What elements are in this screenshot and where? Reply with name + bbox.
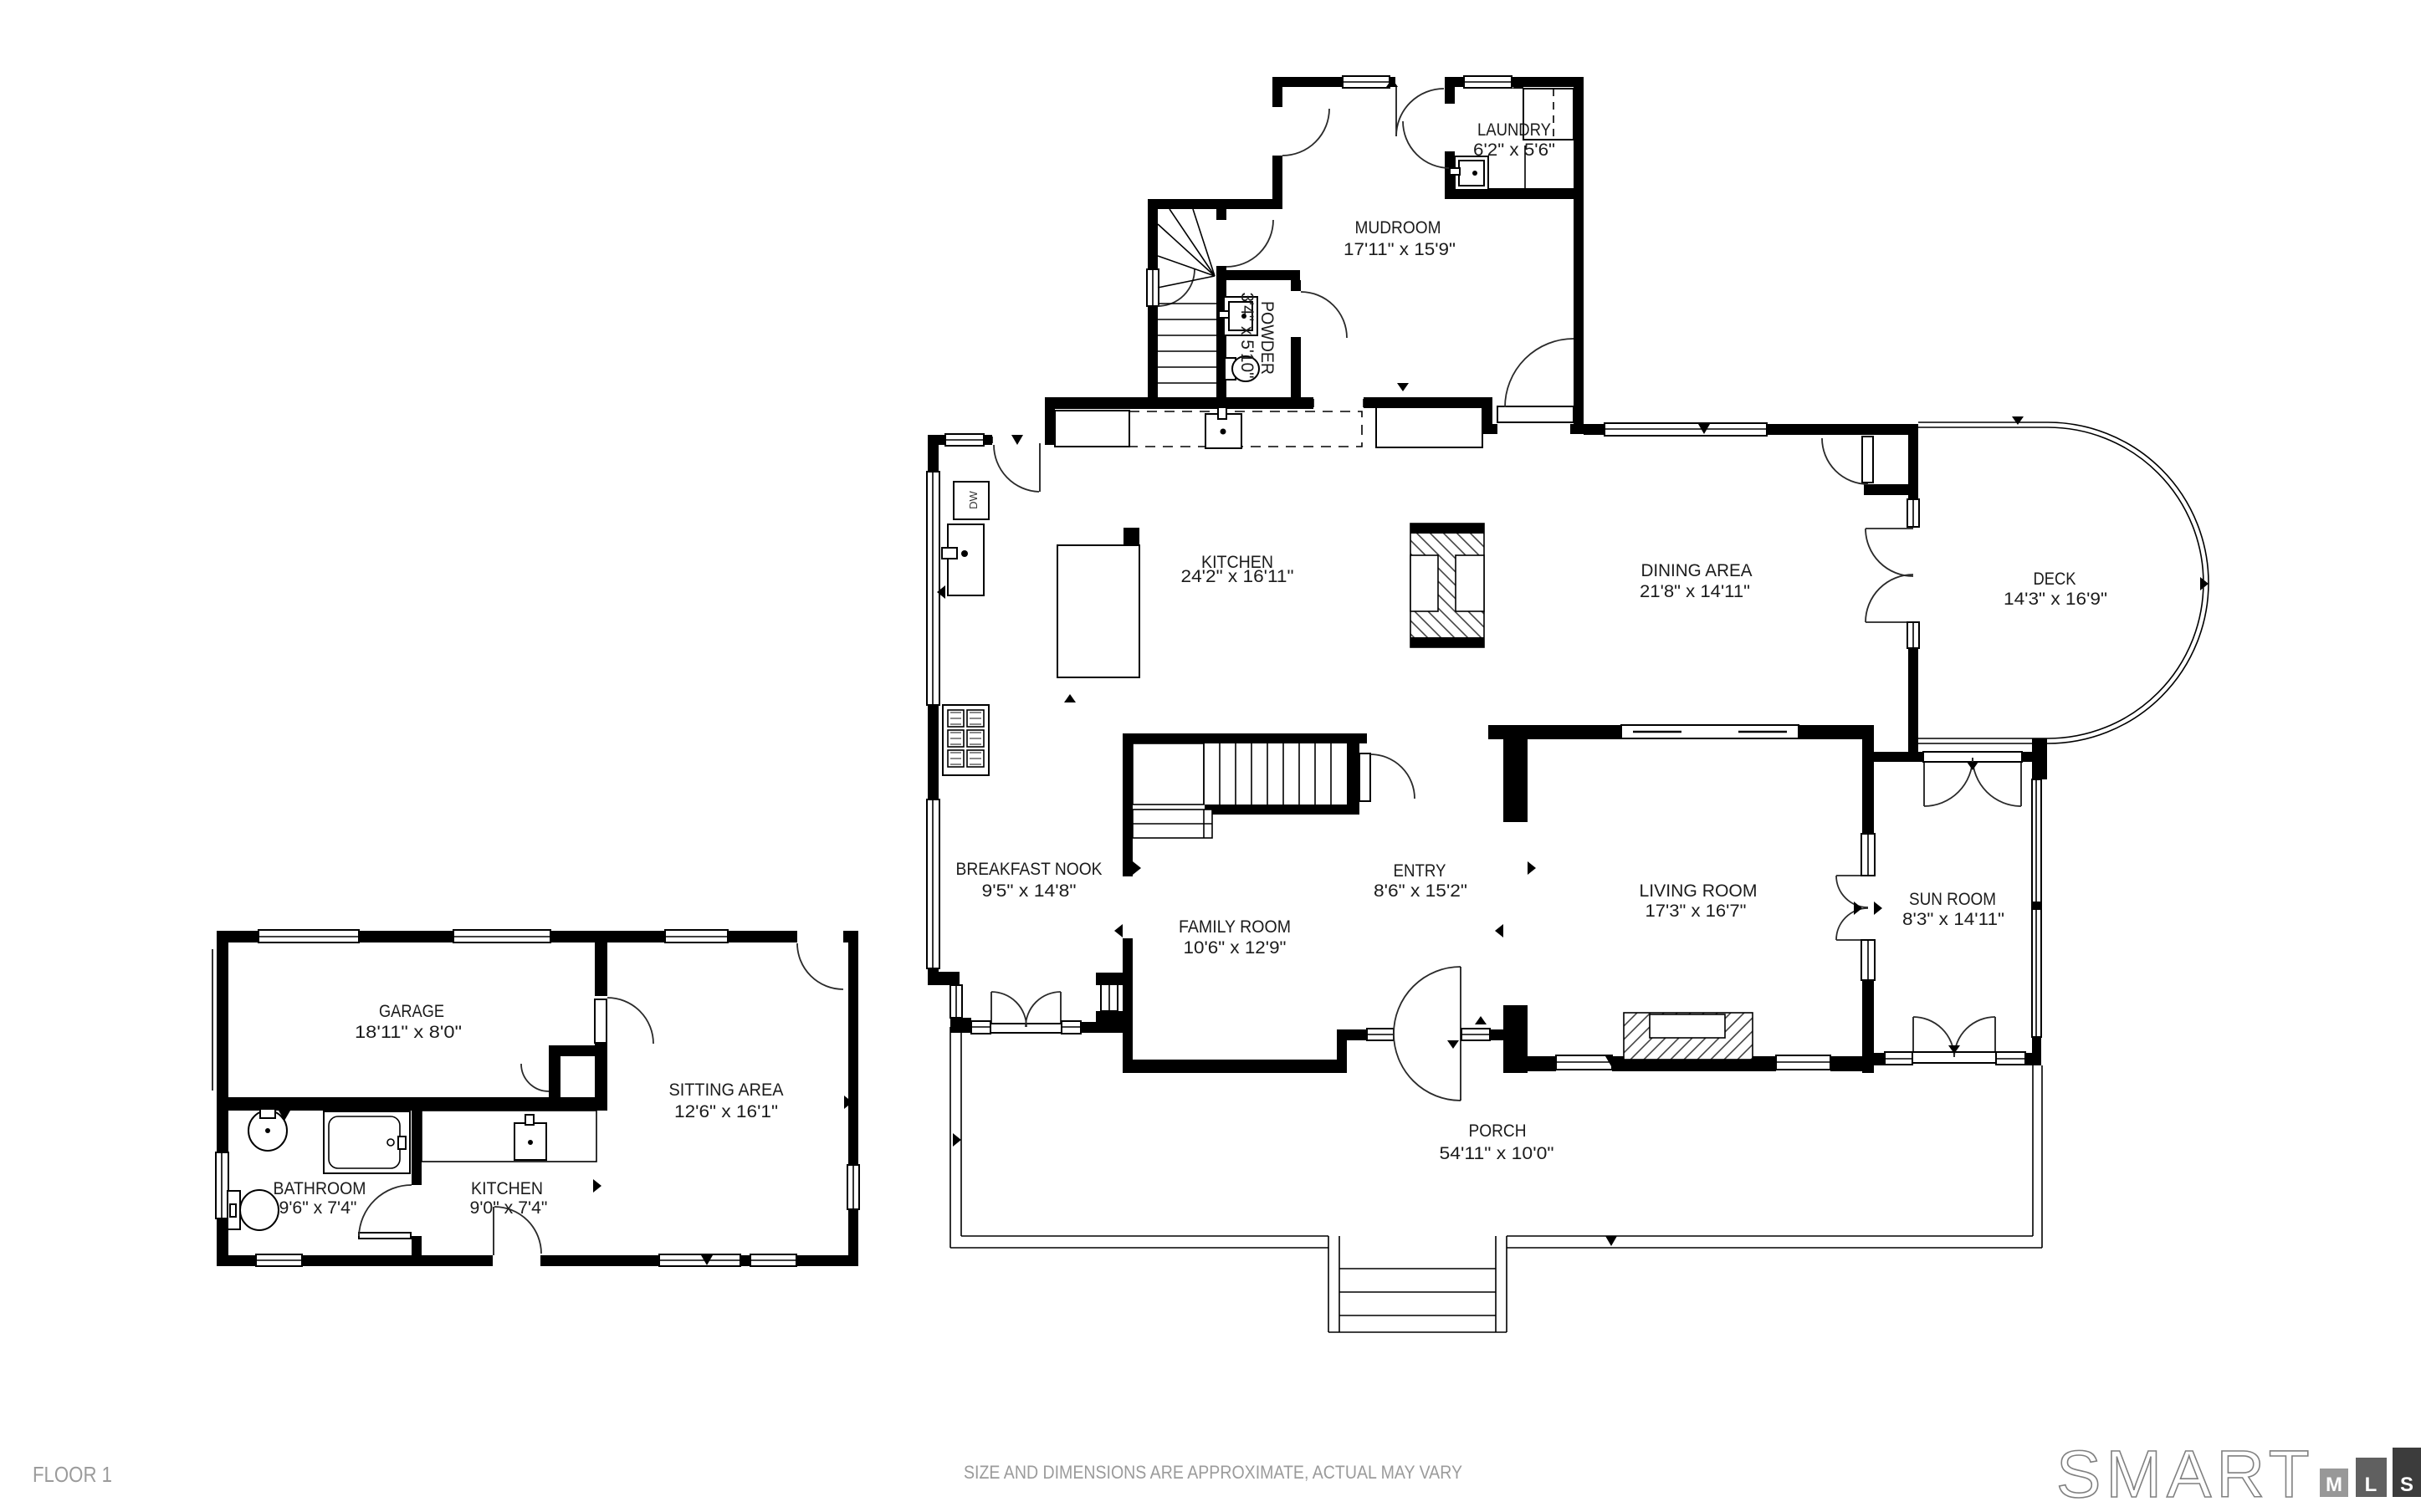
svg-text:M: M <box>2326 1474 2342 1496</box>
svg-text:SIZE AND DIMENSIONS ARE APPROX: SIZE AND DIMENSIONS ARE APPROXIMATE, ACT… <box>964 1462 1462 1483</box>
svg-text:12'6" x 16'1": 12'6" x 16'1" <box>674 1102 778 1121</box>
svg-text:10'6" x 12'9": 10'6" x 12'9" <box>1184 938 1287 958</box>
svg-text:LIVING ROOM: LIVING ROOM <box>1640 881 1758 901</box>
svg-text:S: S <box>2400 1474 2413 1496</box>
svg-text:18'11" x 8'0": 18'11" x 8'0" <box>355 1023 462 1042</box>
svg-text:14'3" x 16'9": 14'3" x 16'9" <box>2004 590 2107 609</box>
svg-text:24'2" x 16'11": 24'2" x 16'11" <box>1181 567 1294 586</box>
svg-text:LAUNDRY: LAUNDRY <box>1477 120 1551 140</box>
svg-text:DINING AREA: DINING AREA <box>1641 561 1753 580</box>
svg-text:54'11" x 10'0": 54'11" x 10'0" <box>1440 1144 1554 1163</box>
svg-text:BATHROOM: BATHROOM <box>274 1179 366 1198</box>
svg-text:MUDROOM: MUDROOM <box>1355 218 1441 238</box>
svg-text:ENTRY: ENTRY <box>1394 861 1446 881</box>
svg-text:17'11" x 15'9": 17'11" x 15'9" <box>1344 240 1456 259</box>
svg-text:L: L <box>2365 1474 2377 1496</box>
svg-text:8'6" x 15'2": 8'6" x 15'2" <box>1374 881 1467 901</box>
svg-text:GARAGE: GARAGE <box>379 1002 444 1021</box>
svg-text:PORCH: PORCH <box>1469 1121 1527 1141</box>
svg-text:DECK: DECK <box>2034 570 2076 589</box>
svg-text:21'8" x 14'11": 21'8" x 14'11" <box>1640 582 1750 601</box>
svg-text:9'6" x 7'4": 9'6" x 7'4" <box>279 1198 357 1218</box>
svg-text:SITTING AREA: SITTING AREA <box>669 1080 784 1100</box>
svg-text:KITCHEN: KITCHEN <box>471 1179 543 1198</box>
svg-text:8'3" x 14'11": 8'3" x 14'11" <box>1902 910 2004 929</box>
svg-text:FAMILY ROOM: FAMILY ROOM <box>1179 917 1291 937</box>
svg-text:POWDER: POWDER <box>1257 301 1277 375</box>
svg-text:3'4" x 5'10": 3'4" x 5'10" <box>1237 293 1257 379</box>
svg-text:FLOOR 1: FLOOR 1 <box>33 1462 112 1487</box>
svg-text:SUN ROOM: SUN ROOM <box>1909 890 1996 909</box>
svg-text:DW: DW <box>967 490 980 508</box>
svg-text:BREAKFAST NOOK: BREAKFAST NOOK <box>956 860 1103 879</box>
svg-text:9'0" x 7'4": 9'0" x 7'4" <box>470 1198 548 1218</box>
svg-text:17'3" x 16'7": 17'3" x 16'7" <box>1646 902 1747 921</box>
svg-text:SMART: SMART <box>2056 1437 2315 1511</box>
svg-text:6'2" x 5'6": 6'2" x 5'6" <box>1473 140 1555 160</box>
svg-text:9'5" x 14'8": 9'5" x 14'8" <box>982 881 1077 901</box>
